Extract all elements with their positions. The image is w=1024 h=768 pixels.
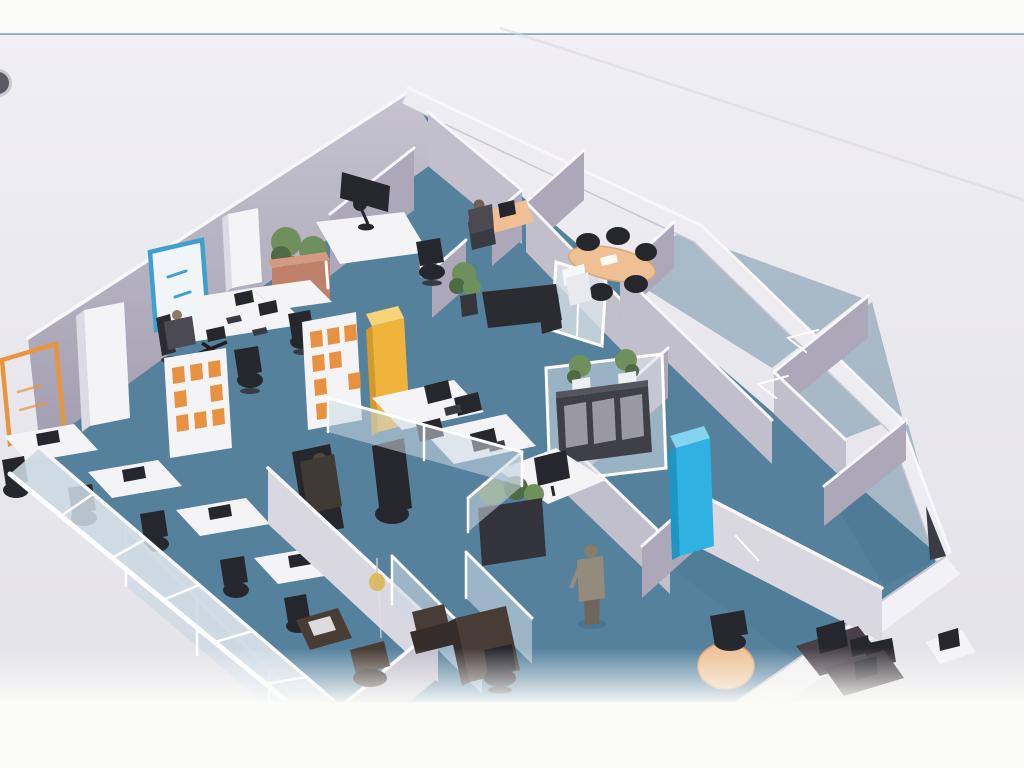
chair-seat: [419, 264, 445, 280]
chair-seat: [223, 582, 249, 598]
shelving-unit-orange-left: [164, 348, 232, 458]
office-chair: [710, 610, 748, 651]
bottom-cutoff: [0, 702, 1024, 768]
orange-box: [176, 414, 189, 432]
person-head: [585, 545, 598, 558]
chair-base: [240, 388, 260, 394]
office-chair: [220, 556, 249, 598]
desk-lamp-base: [358, 224, 374, 231]
cabinet-front: [676, 438, 714, 556]
bottom-fade: [0, 648, 1024, 706]
plant-pot: [460, 293, 478, 317]
person-torso: [164, 316, 196, 350]
chair-seat: [375, 504, 409, 524]
chair-back: [220, 556, 248, 586]
meeting-chair: [589, 283, 613, 301]
orange-box: [312, 354, 325, 372]
orange-box: [190, 363, 203, 381]
scanned-page: [0, 0, 1024, 768]
orange-box: [212, 408, 225, 426]
orange-box: [194, 411, 207, 429]
chair-back: [234, 346, 262, 376]
orange-box: [208, 360, 221, 378]
orange-box: [327, 327, 340, 345]
plant-foliage: [449, 278, 465, 294]
cabinet-front: [228, 208, 262, 288]
orange-box: [344, 324, 357, 342]
table-leg: [326, 262, 328, 288]
white-tall-cabinet-1: [222, 208, 262, 292]
printer-body: [566, 272, 592, 306]
orange-box: [174, 390, 187, 408]
meeting-chair: [635, 243, 657, 261]
chair-base: [422, 280, 442, 286]
chair-seat: [237, 372, 263, 388]
orange-box: [348, 372, 361, 390]
chair-back: [416, 238, 444, 266]
cabinet-front: [84, 302, 130, 426]
lamp-shade: [369, 573, 385, 591]
floor-plan-rendering: [0, 0, 1024, 768]
orange-box: [210, 384, 223, 402]
sideboard-panel: [564, 402, 588, 448]
page-top-margin: [0, 0, 1024, 34]
black-cabinet-small: [538, 294, 562, 334]
orange-box: [329, 351, 342, 369]
sideboard-panel: [620, 394, 644, 440]
orange-box: [172, 366, 185, 384]
orange-box: [314, 378, 327, 396]
white-tall-cabinet-2: [76, 302, 130, 432]
meeting-chair: [576, 233, 600, 251]
meeting-chair: [606, 227, 630, 245]
teal-rule-line: [0, 33, 1024, 35]
plant-foliage: [463, 278, 481, 296]
orange-box: [310, 330, 323, 348]
person-torso: [577, 556, 605, 602]
meeting-chair: [624, 275, 648, 293]
monitor-stand: [552, 486, 554, 496]
sideboard-panel: [592, 398, 616, 444]
